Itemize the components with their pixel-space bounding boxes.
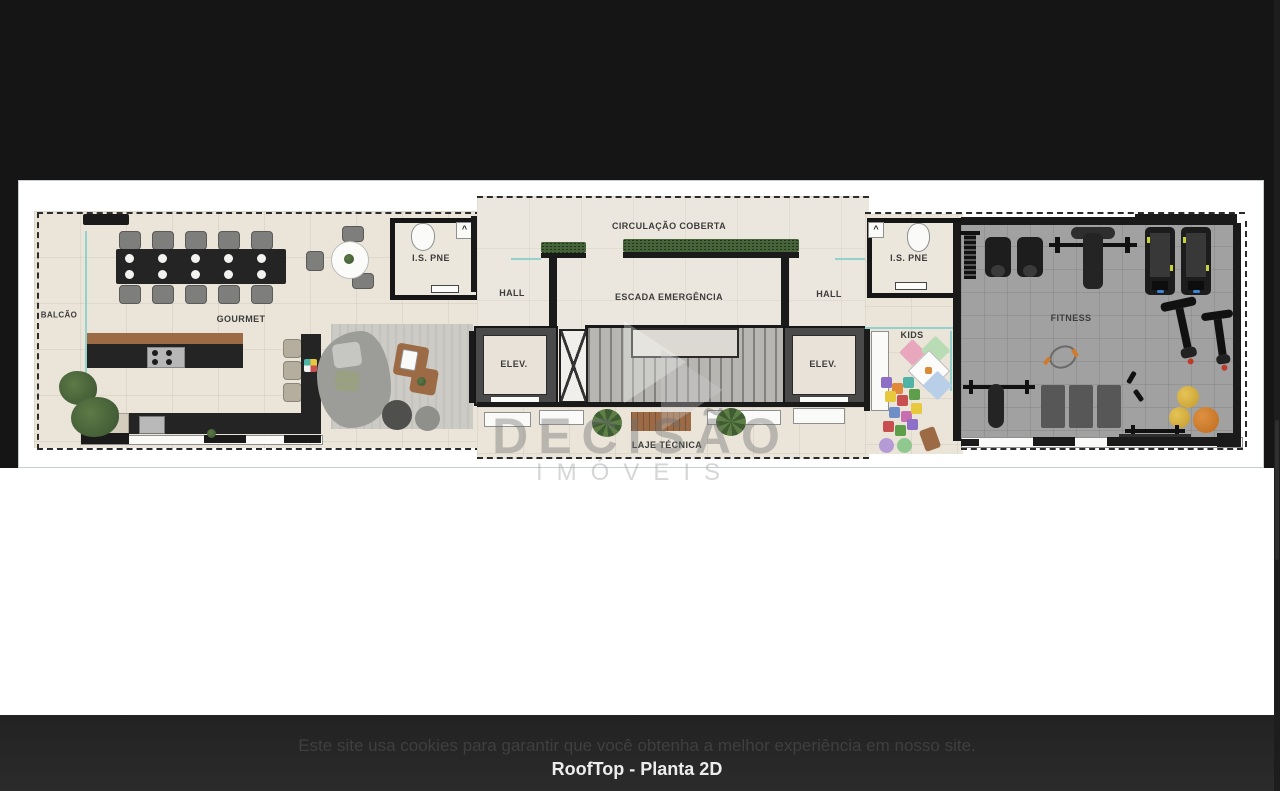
- kids-pouf: [897, 438, 912, 453]
- glass-rail: [950, 331, 952, 391]
- exercise-mat: [1097, 385, 1121, 428]
- plate: [224, 254, 233, 263]
- dining-chair: [185, 285, 207, 304]
- burner: [152, 359, 158, 365]
- barbell-plate: [969, 380, 973, 394]
- exercise-mat: [1069, 385, 1093, 428]
- dining-chair: [119, 231, 141, 250]
- machine-seat: [991, 265, 1005, 277]
- label-elev-left: ELEV.: [500, 359, 527, 369]
- dining-chair: [251, 285, 273, 304]
- watermark-brand-sub: IMÓVEIS: [536, 459, 734, 487]
- label-escada: ESCADA EMERGÊNCIA: [615, 292, 723, 302]
- plate: [191, 270, 200, 279]
- image-caption: RoofTop - Planta 2D: [0, 759, 1274, 780]
- dining-chair: [251, 231, 273, 250]
- treadmill: [1145, 227, 1175, 295]
- dining-chair: [218, 285, 240, 304]
- door-opening: [431, 285, 459, 293]
- pouf: [415, 406, 440, 431]
- table-tray: [399, 349, 418, 371]
- planter-hedge: [541, 242, 586, 253]
- kitchen-island-woodtop: [87, 333, 243, 344]
- exercise-ball: [1169, 407, 1190, 428]
- toilet: [907, 223, 930, 252]
- bar-stool: [283, 383, 302, 402]
- machine-seat: [1023, 265, 1037, 277]
- planter-wall: [623, 252, 799, 258]
- planter-wall: [541, 253, 586, 258]
- dining-chair: [119, 285, 141, 304]
- entry-mat: [83, 214, 129, 225]
- bush: [71, 397, 119, 437]
- kids-table-toy: [925, 367, 932, 374]
- glass-door: [511, 258, 541, 260]
- small-plant: [207, 429, 216, 438]
- page-background: [0, 468, 1274, 715]
- label-balcao: BALCÃO: [41, 311, 78, 320]
- plate: [158, 254, 167, 263]
- edge-wall-segment: [1107, 437, 1219, 446]
- plate: [125, 270, 134, 279]
- bar-stool: [283, 361, 302, 380]
- dining-chair: [185, 231, 207, 250]
- right-dashed-side: [1245, 221, 1247, 447]
- toilet: [411, 223, 435, 251]
- watermark-brand: DECISÃO: [492, 407, 790, 465]
- stair-shaft-wall: [549, 253, 557, 329]
- bench-press: [988, 384, 1004, 428]
- label-hall-left: HALL: [499, 288, 525, 298]
- barbell-stand: [1119, 434, 1191, 437]
- barbell-plate: [1125, 237, 1130, 253]
- edge-wall-segment: [961, 439, 979, 446]
- edge-wall-corner: [1217, 433, 1241, 447]
- burner: [152, 350, 158, 356]
- floorplan-image[interactable]: BALCÃO GOURMET ^ I.S. PNE: [18, 180, 1264, 468]
- stair-shaft-wall: [781, 253, 789, 329]
- bistro-chair: [342, 226, 364, 242]
- plate: [125, 254, 134, 263]
- plate: [224, 270, 233, 279]
- sofa-cushion: [331, 341, 362, 369]
- footer-bar: Este site usa cookies para garantir que …: [0, 715, 1274, 791]
- planter-hedge: [623, 239, 799, 252]
- pouf: [382, 400, 412, 430]
- barbell-plate: [1025, 380, 1029, 394]
- bench: [793, 408, 845, 424]
- circulation-dashed-top: [477, 196, 869, 198]
- label-circulacao: CIRCULAÇÃO COBERTA: [612, 221, 726, 231]
- vent-symbol: ^: [868, 222, 884, 238]
- bar-stool: [283, 339, 302, 358]
- label-is-pne-right: I.S. PNE: [890, 253, 928, 263]
- plate: [257, 270, 266, 279]
- exercise-ball: [1193, 407, 1219, 433]
- scrollbar-thumb[interactable]: [1275, 420, 1279, 560]
- table-plant: [344, 254, 354, 264]
- table-plant: [417, 377, 426, 386]
- scrollbar[interactable]: [1274, 0, 1280, 791]
- glass-rail: [865, 327, 953, 329]
- fitness-dashed-bottom: [961, 448, 1243, 450]
- door-opening: [895, 282, 927, 290]
- kids-wall: [864, 329, 870, 411]
- barbell-plate: [1055, 237, 1060, 253]
- label-is-pne-left: I.S. PNE: [412, 253, 450, 263]
- edge-wall-segment: [284, 435, 321, 443]
- edge-wall-segment: [1033, 437, 1075, 446]
- label-gourmet: GOURMET: [217, 314, 266, 324]
- glass-door: [835, 258, 865, 260]
- fitness-wall-left: [953, 223, 961, 441]
- bistro-chair: [306, 251, 324, 271]
- label-fitness: FITNESS: [1051, 313, 1092, 323]
- sofa-cushion: [334, 370, 360, 392]
- kids-pouf: [879, 438, 894, 453]
- burner: [166, 350, 172, 356]
- label-hall-right: HALL: [816, 289, 842, 299]
- fitness-wall-top-corner: [1135, 214, 1237, 224]
- exercise-ball: [1177, 386, 1199, 408]
- plate: [191, 254, 200, 263]
- weight-rack: [964, 235, 976, 279]
- weight-rack-bar: [960, 231, 980, 235]
- plate: [158, 270, 167, 279]
- label-elev-right: ELEV.: [809, 359, 836, 369]
- sink: [139, 416, 165, 434]
- treadmill: [1181, 227, 1211, 295]
- plate: [257, 254, 266, 263]
- floorplan-canvas: BALCÃO GOURMET ^ I.S. PNE: [19, 181, 1263, 467]
- bench-press: [1083, 233, 1103, 289]
- exercise-mat: [1041, 385, 1065, 428]
- burner: [166, 359, 172, 365]
- duct-shaft: [559, 329, 588, 403]
- dining-chair: [152, 231, 174, 250]
- counter-decor: [304, 359, 317, 372]
- cookie-notice: Este site usa cookies para garantir que …: [0, 715, 1274, 756]
- dining-chair: [218, 231, 240, 250]
- dining-chair: [152, 285, 174, 304]
